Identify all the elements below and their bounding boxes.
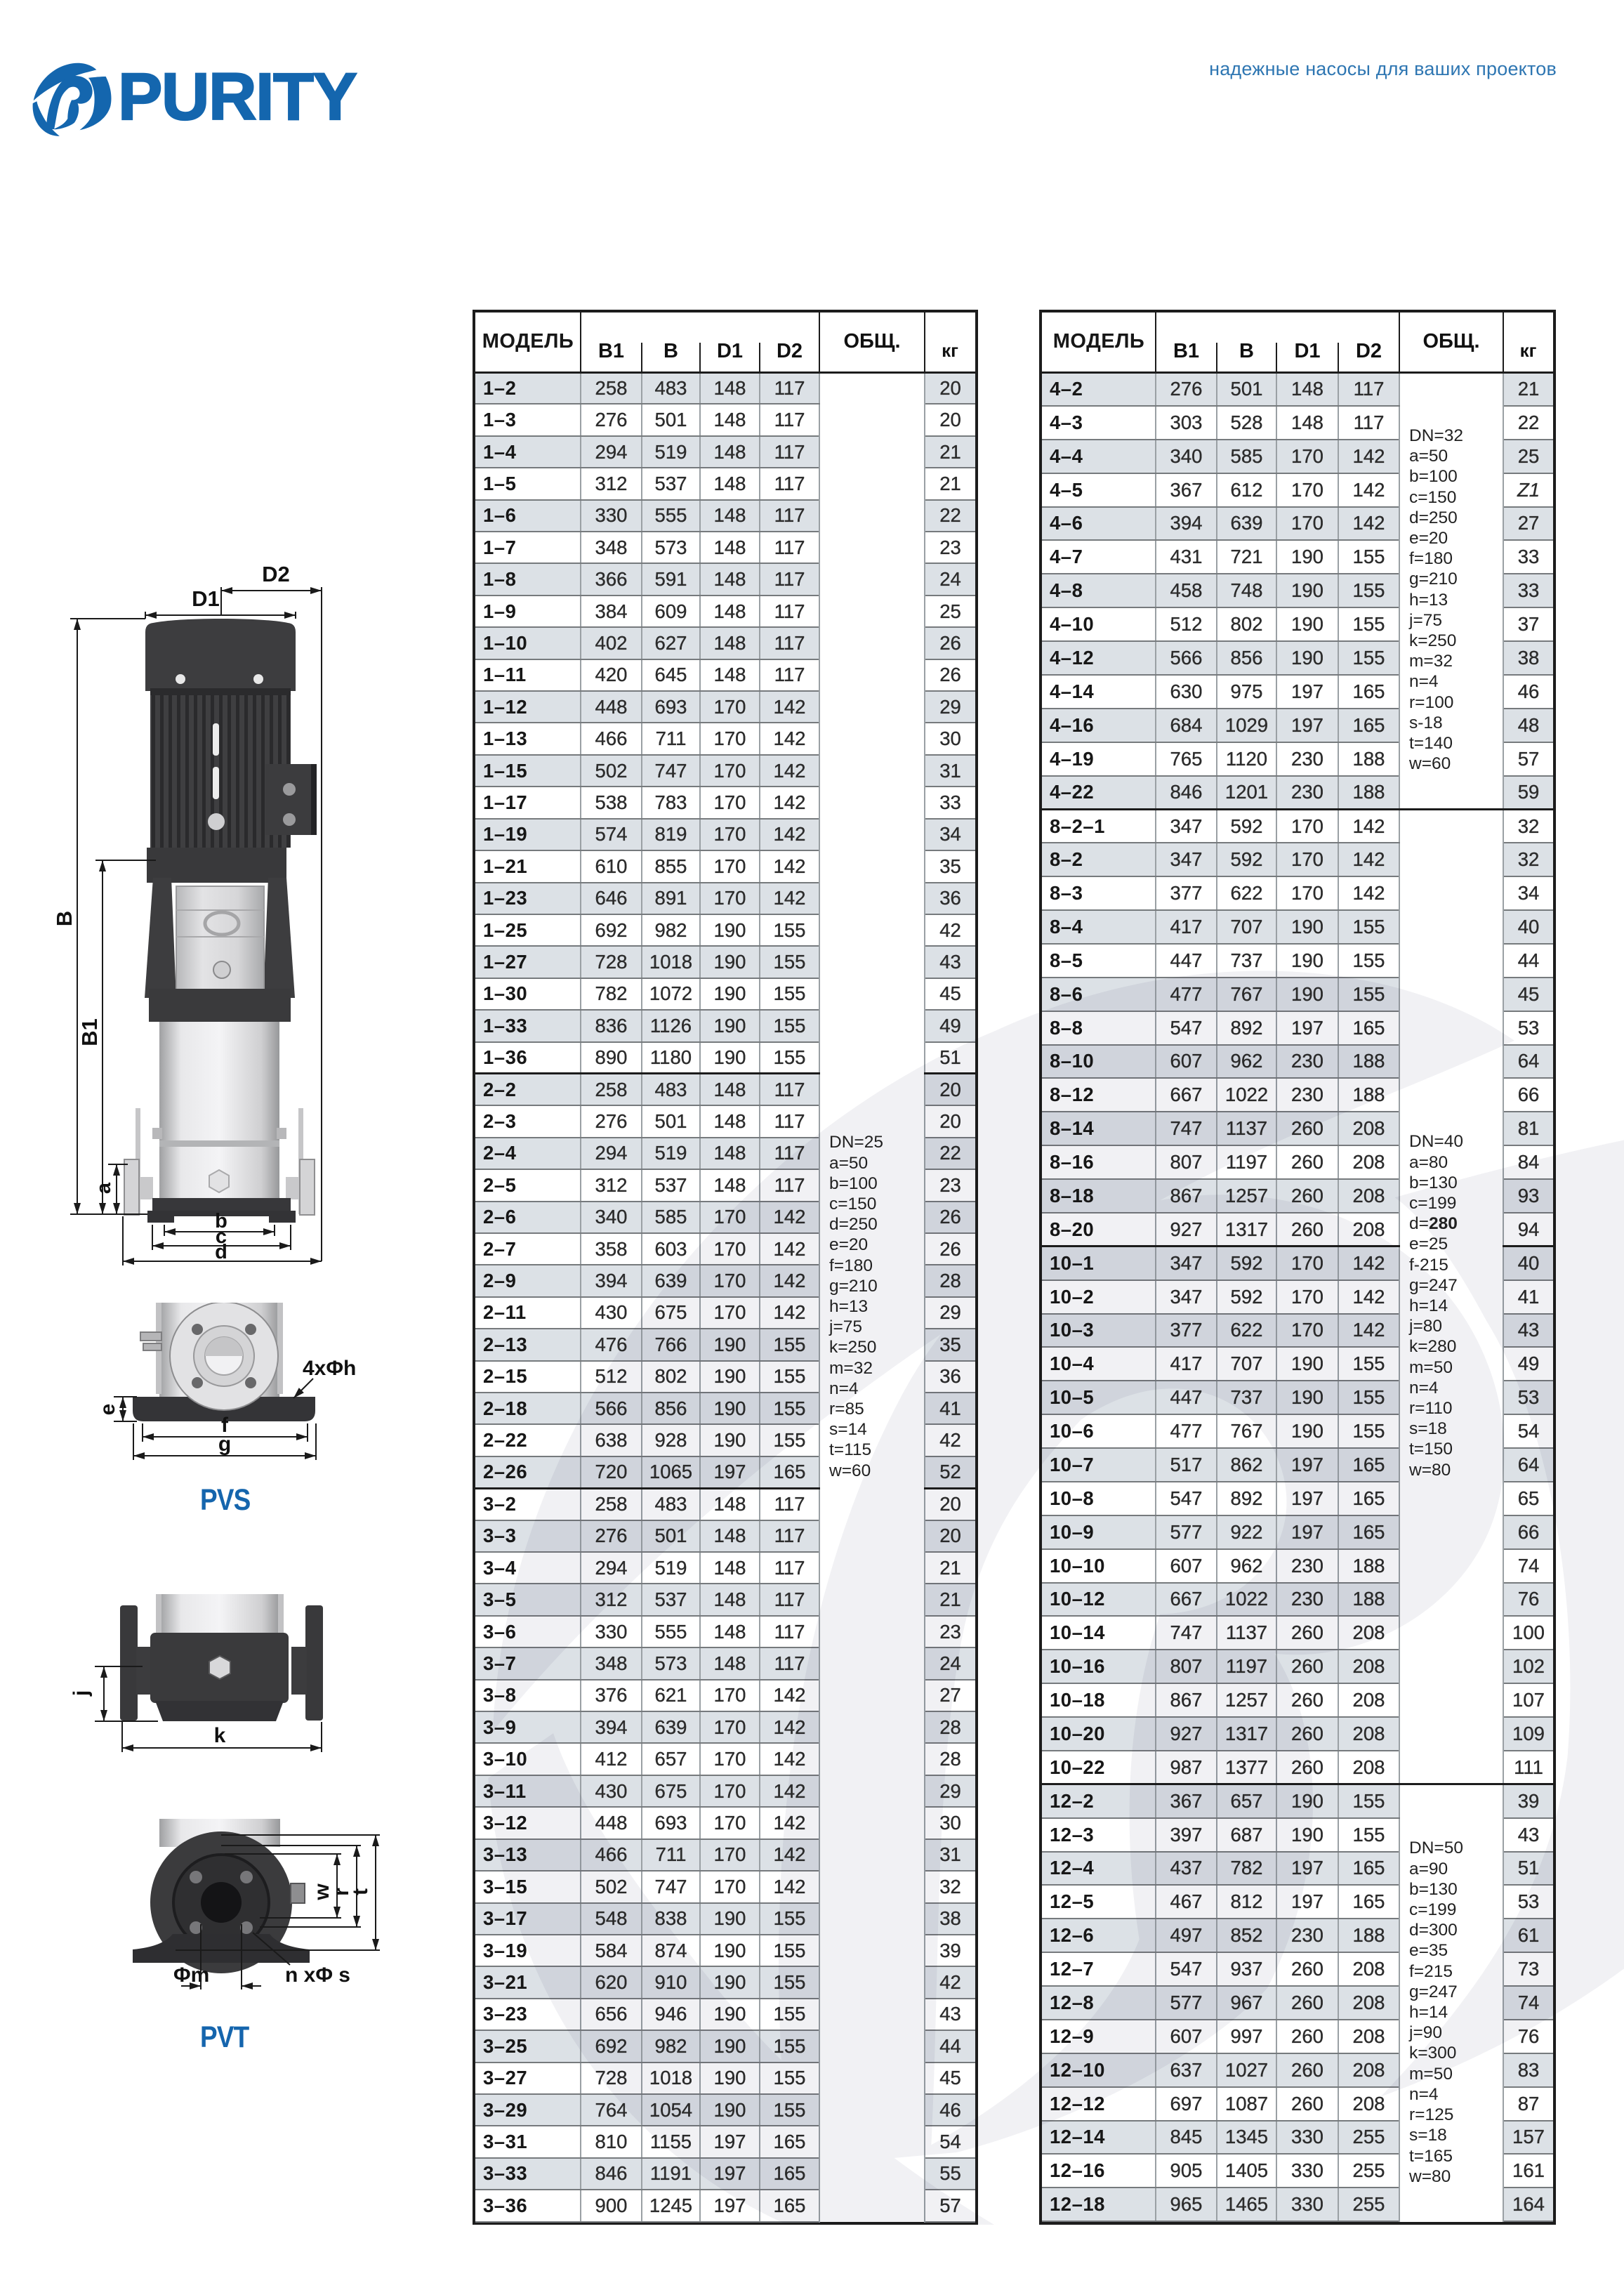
svg-text:D2: D2 [262,562,290,586]
svg-text:4xΦh: 4xΦh [303,1357,356,1380]
svg-text:n xΦ s: n xΦ s [285,1963,350,1987]
svg-text:j: j [70,1690,93,1697]
svg-text:g: g [218,1433,231,1456]
svg-text:Φm: Φm [173,1963,209,1987]
svg-text:B1: B1 [77,1018,102,1046]
svg-text:D1: D1 [192,586,220,611]
svg-text:t: t [349,1888,372,1895]
svg-text:e: e [96,1404,119,1416]
svg-text:d: d [215,1241,227,1263]
svg-text:a: a [93,1182,115,1194]
svg-text:B: B [52,911,77,926]
svg-text:k: k [214,1724,226,1747]
